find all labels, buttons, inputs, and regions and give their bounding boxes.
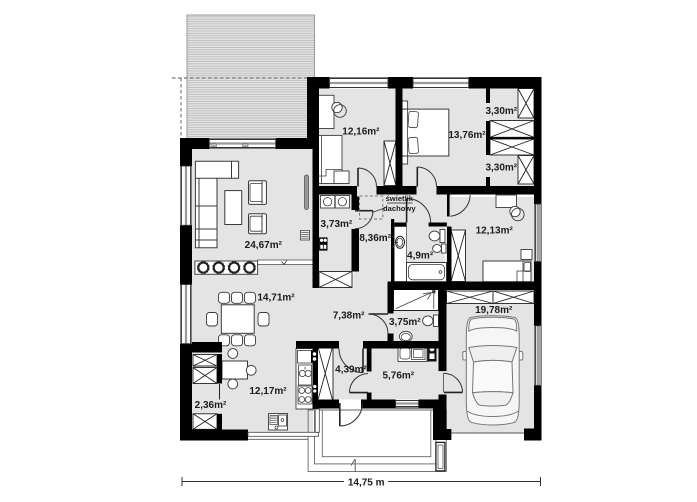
svg-text:12,13m²: 12,13m²	[476, 226, 514, 237]
svg-text:12,16m²: 12,16m²	[342, 126, 380, 137]
svg-text:3,73m²: 3,73m²	[321, 219, 353, 230]
svg-text:dachowy: dachowy	[383, 204, 416, 213]
svg-text:3,30m²: 3,30m²	[485, 106, 517, 117]
svg-text:3,75m²: 3,75m²	[389, 317, 421, 328]
svg-text:24,67m²: 24,67m²	[245, 240, 283, 251]
svg-text:2,36m²: 2,36m²	[195, 400, 227, 411]
svg-text:4,9m²: 4,9m²	[407, 251, 434, 262]
svg-text:4,39m²: 4,39m²	[335, 365, 367, 376]
svg-text:12,17m²: 12,17m²	[249, 386, 287, 397]
svg-text:14,71m²: 14,71m²	[257, 292, 295, 303]
svg-text:14,75 m: 14,75 m	[348, 477, 385, 488]
svg-text:5,76m²: 5,76m²	[382, 371, 414, 382]
svg-text:13,76m²: 13,76m²	[448, 130, 486, 141]
svg-text:8,36m²: 8,36m²	[359, 233, 391, 244]
svg-text:3,30m²: 3,30m²	[485, 162, 517, 173]
svg-text:19,78m²: 19,78m²	[475, 305, 513, 316]
svg-text:świetlik: świetlik	[386, 194, 414, 203]
svg-text:7,38m²: 7,38m²	[333, 311, 365, 322]
